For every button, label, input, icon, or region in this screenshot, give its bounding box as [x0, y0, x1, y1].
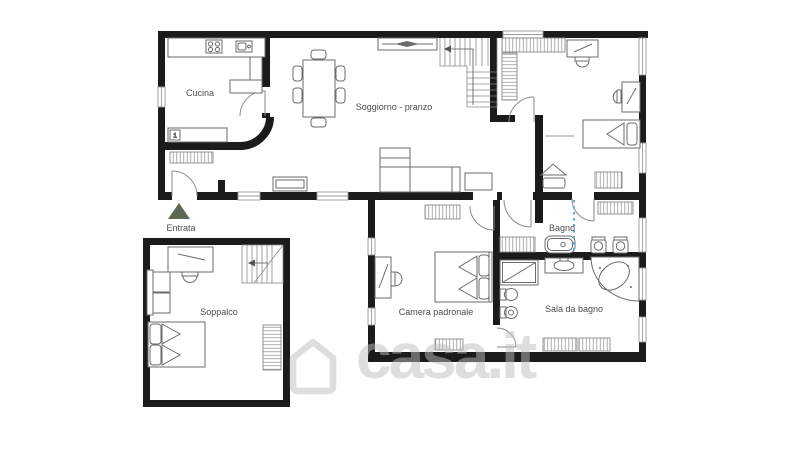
- radiator-icon: [598, 202, 633, 214]
- window: [639, 218, 646, 252]
- entrance-marker-icon: [168, 203, 190, 219]
- radiator-icon: [500, 237, 535, 252]
- window: [317, 192, 348, 200]
- kitchen-unit-number: 1: [173, 133, 177, 140]
- kitchen-sink-icon: [236, 41, 252, 52]
- radiator-icon: [595, 172, 622, 188]
- window: [639, 268, 646, 300]
- house-outline-icon: [293, 342, 333, 391]
- desk-icon: [613, 82, 640, 112]
- room-label-entrata: Entrata: [166, 223, 195, 233]
- floor-plan: 1: [0, 0, 800, 450]
- corner-tub-icon: [591, 256, 639, 301]
- stairs-icon: [440, 38, 497, 107]
- window: [639, 38, 646, 75]
- master-bedroom-door-arc: [470, 206, 494, 230]
- bidet-icon: [613, 237, 628, 253]
- shower-icon: [500, 260, 538, 285]
- room-label-sala-da-bagno: Sala da bagno: [545, 304, 603, 314]
- desk-icon: [168, 247, 213, 283]
- bathroom-door-arc: [572, 199, 594, 221]
- master-bedroom: [375, 252, 492, 302]
- hall-door-arc: [504, 200, 531, 227]
- kitchen-door-arc: [240, 91, 265, 116]
- window: [238, 192, 260, 200]
- floor-plan-page: 1: [0, 0, 800, 450]
- stairs-icon: [242, 245, 283, 283]
- tv-sideboard-icon: [378, 38, 437, 50]
- radiator-icon: [543, 338, 577, 351]
- desk-icon: [567, 40, 598, 67]
- radiator-icon: [170, 152, 213, 163]
- entrance: Entrata: [166, 203, 195, 233]
- radiator-icon: [263, 325, 281, 370]
- dining-table-icon: [293, 50, 345, 127]
- bed-icon: [435, 252, 492, 302]
- bathtub-icon: [545, 236, 575, 253]
- living-dining-room: [273, 38, 574, 192]
- desk-icon: [375, 257, 402, 298]
- bed-icon: [583, 120, 640, 148]
- window: [368, 238, 375, 255]
- room-label-bagno: Bagno: [549, 223, 575, 233]
- bidet-icon: [500, 307, 518, 319]
- room-label-camera-padronale: Camera padronale: [399, 307, 474, 317]
- sofa-icon: [147, 270, 170, 315]
- bed-icon: [148, 322, 205, 367]
- toilet-icon: [500, 289, 518, 301]
- window: [158, 87, 165, 107]
- kitchen-counter: [230, 80, 262, 93]
- watermark: casa.it: [293, 320, 537, 392]
- kitchen: 1: [168, 38, 265, 142]
- radiator-icon: [502, 53, 517, 100]
- window: [503, 31, 543, 38]
- stove-icon: [206, 40, 222, 53]
- entrance-door-arc: [172, 171, 197, 196]
- sideboard-icon: [273, 177, 307, 191]
- sofa-icon: [380, 148, 460, 192]
- toilet-icon: [591, 237, 606, 253]
- sink-icon: [545, 258, 583, 273]
- room-label-cucina: Cucina: [186, 88, 214, 98]
- chair-seat-icon: [541, 164, 566, 188]
- room-label-soppalco: Soppalco: [200, 307, 238, 317]
- wardrobe-icon: [502, 38, 565, 52]
- bedroom-right: [541, 40, 640, 188]
- radiator-icon: [425, 205, 460, 219]
- watermark-text: casa.it: [356, 320, 537, 392]
- room-label-soggiorno: Soggiorno - pranzo: [356, 102, 433, 112]
- window: [639, 317, 646, 342]
- radiator-icon: [579, 338, 610, 351]
- coffee-table-icon: [465, 173, 492, 190]
